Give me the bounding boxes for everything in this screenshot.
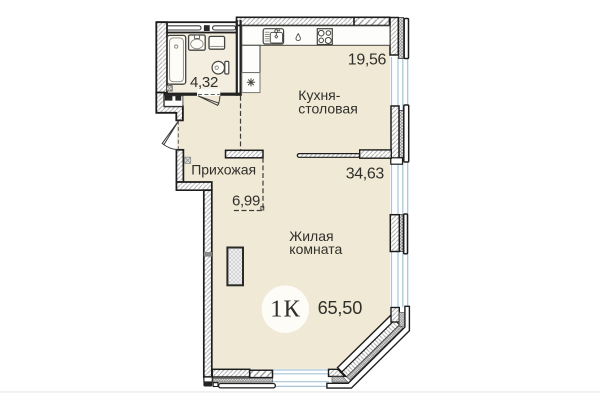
svg-text:19,56: 19,56: [348, 52, 387, 69]
svg-text:Ø■: Ø■: [165, 96, 172, 101]
svg-text:65,50: 65,50: [318, 298, 363, 318]
svg-text:Прихожая: Прихожая: [191, 161, 256, 177]
svg-text:34,63: 34,63: [346, 166, 385, 183]
svg-text:комната: комната: [289, 241, 342, 257]
svg-text:1К: 1К: [270, 295, 301, 322]
svg-text:4,32: 4,32: [190, 74, 218, 91]
svg-text:Ø: Ø: [177, 96, 181, 101]
svg-text:Ø: Ø: [205, 26, 210, 32]
svg-text:столовая: столовая: [298, 100, 358, 116]
svg-text:6,99: 6,99: [232, 192, 260, 209]
